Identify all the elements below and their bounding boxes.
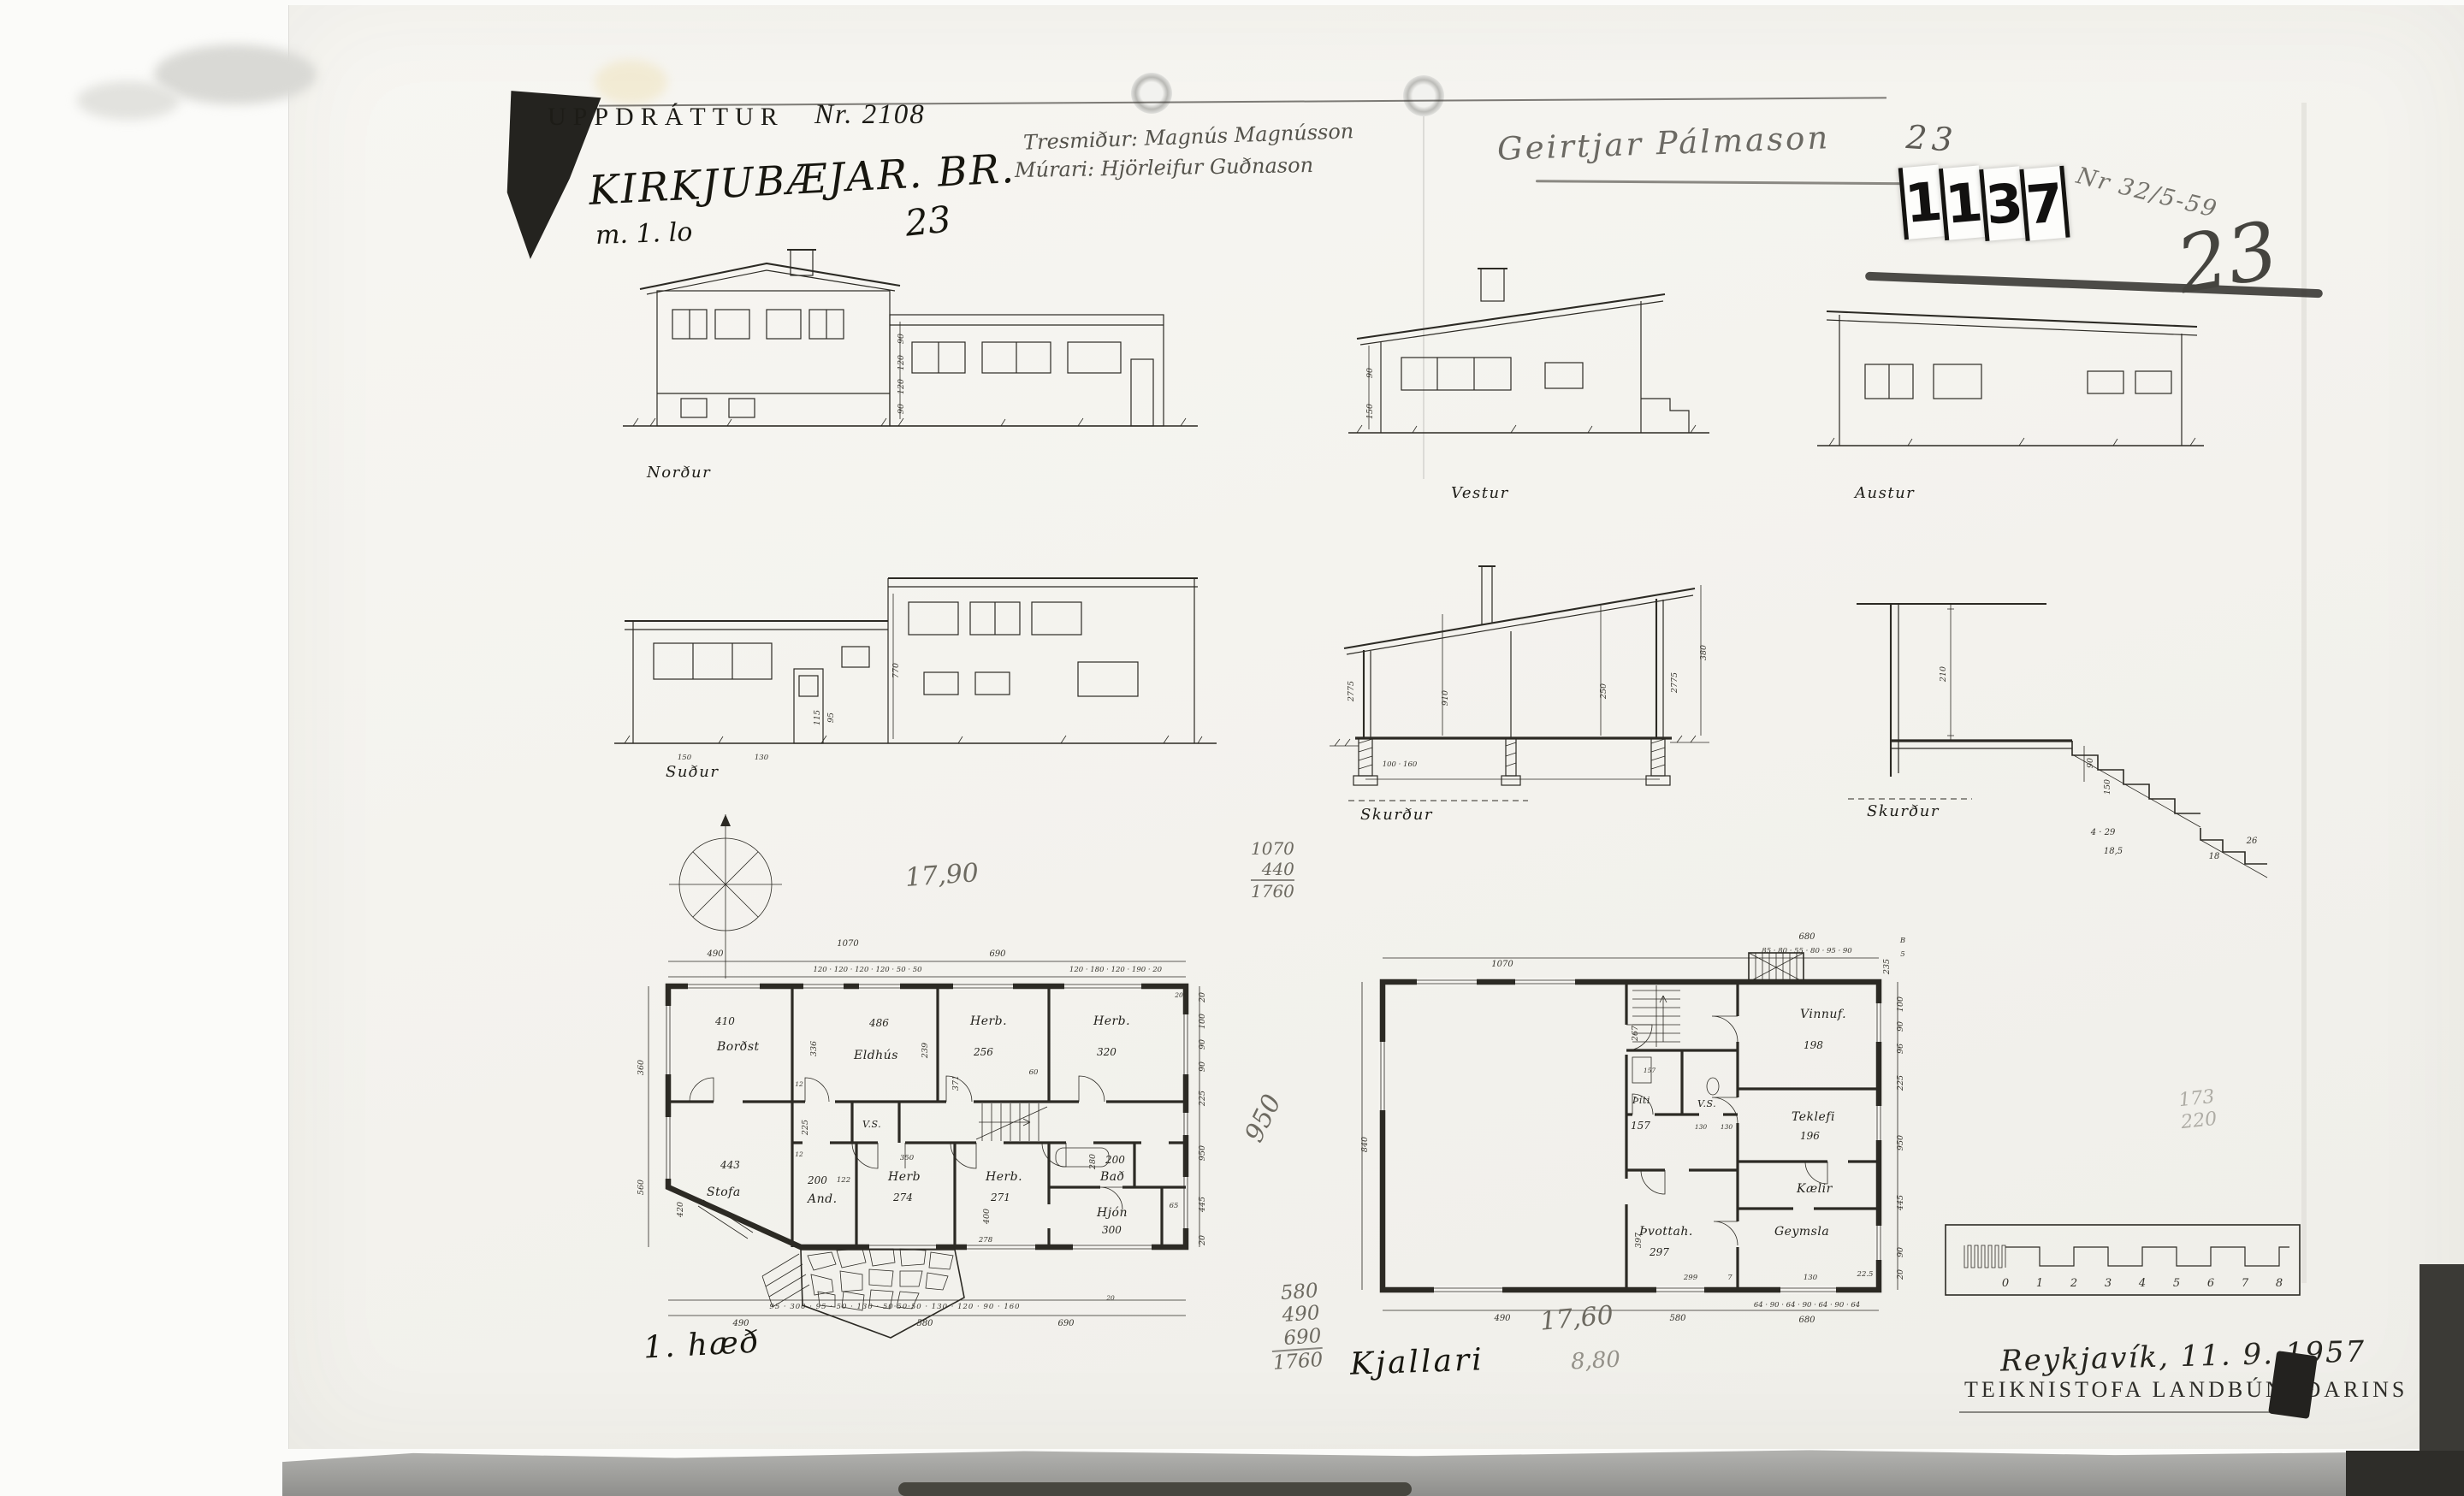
scale-tick: 2 <box>2070 1277 2077 1290</box>
dim-label: 20 <box>1174 991 1183 999</box>
scale-tick: 0 <box>2002 1277 2009 1290</box>
dim-label: 210 <box>1939 666 1948 683</box>
pencil-sum-line: 1760 <box>1272 1349 1324 1375</box>
pencil-faint-notes: 173 220 <box>2177 1086 2218 1135</box>
room-area: 443 <box>720 1159 740 1171</box>
section-a: 2775 910 250 2775 380 100 · 160 Skurður <box>1314 554 1733 828</box>
stamp-digit: 1 <box>1898 164 1945 239</box>
dim-label: 336 <box>809 1041 819 1056</box>
dim-label: 22.5 <box>1857 1270 1874 1279</box>
room-name: Hjón <box>1096 1206 1128 1220</box>
stamp-digit: 1 <box>1939 165 1985 240</box>
scale-tick: 1 <box>2036 1277 2043 1290</box>
dim-label: 1070 <box>837 939 859 949</box>
dim-label: 120 <box>897 355 906 370</box>
section-mark: B <box>1899 937 1905 945</box>
dim-label: 90 <box>1896 1021 1905 1032</box>
dim-label: 20 <box>1198 1235 1207 1246</box>
dim-label: 7 <box>1727 1274 1732 1282</box>
dim-label: 490 <box>706 949 724 959</box>
dim-label: 115 <box>813 710 822 725</box>
dim-label: 225 <box>801 1120 810 1136</box>
pencil-faint-line: 220 <box>2180 1109 2218 1135</box>
dim-label: 690 <box>989 949 1006 959</box>
room-name: V.S. <box>862 1119 881 1130</box>
section-label-a: Skurður <box>1360 806 1433 824</box>
drawing-number: Nr. 2108 <box>814 99 926 131</box>
room-area: 157 <box>1631 1120 1650 1132</box>
dim-label: 400 <box>982 1209 992 1225</box>
dim-label: 445 <box>1198 1197 1207 1213</box>
dim-label: 150 <box>2103 779 2112 795</box>
pencil-stack-line: 1760 <box>1251 881 1294 902</box>
dim-label: 90 <box>897 404 906 414</box>
dim-chain: 120 · 120 · 120 · 120 · 50 · 50 <box>813 966 922 974</box>
pencil-total-basement: 17,60 <box>1539 1300 1615 1336</box>
room-name: Þiti <box>1632 1095 1650 1106</box>
dim-label: 130 <box>1721 1123 1733 1131</box>
paper-stain <box>595 60 667 104</box>
elevation-label-north: Norður <box>646 464 711 482</box>
dim-label: 950 <box>1198 1145 1207 1161</box>
dim-label: 12 <box>795 1150 803 1158</box>
dim-label: 2775 <box>1347 681 1356 702</box>
dim-label: 157 <box>1644 1067 1656 1074</box>
scan-streak <box>2301 103 2307 1283</box>
pencil-total2-basement: 8,80 <box>1570 1347 1620 1375</box>
filing-stamp-1137: 1 1 3 7 <box>1898 154 2070 240</box>
dim-label: 360 <box>637 1060 646 1075</box>
room-area: 196 <box>1800 1130 1820 1142</box>
elevation-label-west: Vestur <box>1451 484 1509 502</box>
dim-label: 130 <box>1804 1274 1818 1282</box>
dim-label: 680 <box>1798 1316 1815 1325</box>
scale-tick: 7 <box>2242 1277 2249 1290</box>
dim-label: 150 <box>678 754 692 762</box>
room-area: 200 <box>1105 1154 1125 1166</box>
dim-label: 580 <box>916 1319 933 1328</box>
scale-bar: 0 1 2 3 4 5 6 7 8 <box>1939 1215 2307 1309</box>
dim-label: 90 <box>2086 758 2095 768</box>
dim-label: 225 <box>1198 1091 1207 1107</box>
drawing-title: UPPDRÁTTUR <box>548 103 785 132</box>
dim-label: 90 <box>1198 1039 1207 1050</box>
room-name: Herb <box>887 1170 921 1184</box>
dim-label: 225 <box>1896 1075 1905 1091</box>
dim-label: 95 <box>826 713 836 723</box>
dim-label: 397 <box>1634 1232 1644 1248</box>
scale-tick: 8 <box>2276 1277 2283 1290</box>
dim-label: 840 <box>1360 1137 1370 1152</box>
section-b: 210 90 150 4 · 29 18,5 18 26 Skurður <box>1831 578 2284 912</box>
dim-label: 90 <box>1198 1061 1207 1072</box>
room-name: Þvottah. <box>1638 1225 1693 1239</box>
ink-blot <box>2268 1351 2318 1419</box>
dim-label: 130 <box>1695 1123 1708 1131</box>
floor1-stairs <box>976 1103 1047 1141</box>
west-linework <box>1348 269 1709 433</box>
elevation-north: 90 120 120 90 Norður <box>599 229 1223 486</box>
scanned-drawing-sheet: UPPDRÁTTUR Nr. 2108 KIRKJUBÆJAR. BR. m. … <box>0 0 2464 1496</box>
dim-label: 26 <box>2246 837 2258 846</box>
scan-corner-dark <box>2420 1264 2464 1463</box>
room-name: Stofa <box>707 1186 741 1199</box>
dim-label: 12 <box>795 1080 803 1088</box>
room-area: 486 <box>868 1017 889 1029</box>
section-label-b: Skurður <box>1867 802 1940 820</box>
dim-label: 20 <box>1198 992 1207 1003</box>
dim-label: 690 <box>1057 1319 1075 1328</box>
pencil-stack-line: 1070 <box>1251 838 1294 859</box>
room-name: Bað <box>1099 1170 1125 1184</box>
dim-label: 250 <box>1599 683 1608 700</box>
stamp-digit: 3 <box>1979 166 2025 241</box>
dim-label: 60 <box>1029 1068 1039 1077</box>
elevation-east: Austur <box>1805 262 2224 510</box>
room-name: Eldhús <box>853 1049 898 1062</box>
dim-label: 420 <box>676 1202 685 1218</box>
room-area: 271 <box>990 1191 1010 1203</box>
room-name: Vinnuf. <box>1800 1008 1846 1021</box>
pencil-stack-line: 440 <box>1251 859 1294 881</box>
dim-label: 910 <box>1441 690 1450 706</box>
dim-label: 680 <box>1798 932 1815 942</box>
pencil-sum-line: 580 <box>1267 1280 1318 1305</box>
room-name: Teklefi <box>1792 1110 1835 1124</box>
pencil-number-small: 23 <box>1905 118 1959 159</box>
room-name: Herb. <box>1093 1014 1130 1028</box>
room-area: 410 <box>714 1015 735 1027</box>
dim-label: 90 <box>1365 368 1375 378</box>
dim-label: 130 <box>755 754 769 762</box>
dim-chain: 95 · 300 · 95 · 50 · 130 · 50·50·50 · 13… <box>769 1303 1020 1311</box>
scan-smudge <box>154 44 317 104</box>
east-linework <box>1817 311 2204 446</box>
dim-label: 18,5 <box>2104 847 2123 856</box>
scale-tick: 6 <box>2207 1277 2214 1290</box>
dim-chain: 85 · 80 · 55 · 80 · 95 · 90 <box>1762 947 1852 955</box>
room-area: 300 <box>1102 1224 1122 1236</box>
basement-partitions <box>1626 982 1879 1290</box>
floor-plan-first-floor: Borðst 410 Eldhús 486 Herb. 256 Herb. 32… <box>587 905 1280 1358</box>
pencil-sum-line: 690 <box>1270 1325 1322 1352</box>
room-area: 297 <box>1649 1246 1669 1258</box>
room-area: 320 <box>1097 1046 1116 1058</box>
scale-tick: 3 <box>2105 1277 2112 1290</box>
dim-label: 20 <box>1896 1269 1905 1280</box>
dim-label: 267 <box>1631 1025 1640 1042</box>
dim-label: 490 <box>1493 1314 1511 1323</box>
dim-label: 120 <box>897 379 906 394</box>
dim-label: 371 <box>951 1075 961 1091</box>
dim-label: 2775 <box>1670 672 1679 694</box>
stamp-digit: 7 <box>2019 166 2070 241</box>
dim-label: 20 <box>1105 1294 1115 1302</box>
punch-hole <box>1131 73 1172 114</box>
floor-plan-basement: Vinnuf. 198 V.S. Þiti 157 Teklefi 196 Kæ… <box>1331 914 1973 1367</box>
dim-label: 122 <box>837 1176 850 1185</box>
dim-label: 65 <box>1170 1202 1179 1210</box>
dim-label: 445 <box>1896 1195 1905 1211</box>
dim-label: 90 <box>897 334 906 344</box>
north-linework <box>623 250 1198 426</box>
dim-label: 950 <box>1896 1135 1905 1150</box>
room-name: Kælir <box>1796 1182 1833 1196</box>
pencil-stack-floor1: 1070 440 1760 <box>1251 838 1294 902</box>
dim-chain: 120 · 180 · 120 · 190 · 20 <box>1069 966 1163 974</box>
dim-label: 770 <box>891 663 901 678</box>
dim-label: 278 <box>978 1236 993 1245</box>
section-mark: 5 <box>1900 950 1904 959</box>
dim-label: 239 <box>921 1043 930 1059</box>
scale-tick: 4 <box>2138 1277 2146 1290</box>
floor1-terrace <box>762 1249 964 1338</box>
room-name: Herb. <box>985 1170 1022 1184</box>
room-name: V.S. <box>1697 1098 1716 1109</box>
plan-label-first-floor: 1. hæð <box>643 1324 761 1365</box>
scan-edge-smear <box>898 1482 1412 1496</box>
basement-entry-stair <box>1749 953 1804 982</box>
room-name: Borðst <box>716 1040 760 1054</box>
south-linework <box>614 578 1217 743</box>
scan-smudge <box>77 81 180 120</box>
dim-label: 100 · 160 <box>1383 760 1418 769</box>
dim-chain: 64 · 90 · 64 · 90 · 64 · 90 · 64 <box>1754 1301 1860 1310</box>
dim-label: 1070 <box>1491 960 1513 969</box>
scale-tick: 5 <box>2173 1277 2180 1290</box>
elevation-west: 90 150 Vestur <box>1331 253 1733 510</box>
dim-label: 96 <box>1896 1044 1905 1054</box>
room-area: 256 <box>973 1046 993 1058</box>
dim-label: 100 <box>1198 1014 1207 1029</box>
punch-hole <box>1403 75 1444 116</box>
dim-label: 100 <box>1896 996 1905 1012</box>
pencil-sum-basement: 580 490 690 1760 <box>1267 1280 1324 1375</box>
dim-label: 235 <box>1882 959 1892 975</box>
room-area: 198 <box>1804 1039 1823 1051</box>
dim-label: 350 <box>900 1154 915 1162</box>
plan-label-basement: Kjallari <box>1349 1342 1484 1381</box>
elevation-label-east: Austur <box>1853 484 1915 502</box>
room-name: Herb. <box>969 1014 1007 1028</box>
elevation-south: 770 115 95 150 130 Suður <box>599 542 1232 799</box>
scan-corner-dark-2 <box>2346 1451 2464 1496</box>
dim-label: 380 <box>1699 645 1709 660</box>
dim-label: 4 · 29 <box>2090 828 2116 837</box>
elevation-label-south: Suður <box>666 763 719 781</box>
dim-label: 280 <box>1088 1154 1098 1170</box>
dim-label: 560 <box>637 1180 646 1195</box>
pencil-sum-line: 490 <box>1269 1302 1320 1327</box>
section-b-linework <box>1848 604 2267 878</box>
dim-label: 90 <box>1896 1247 1905 1257</box>
footer-underline <box>1959 1411 2277 1413</box>
room-name: And. <box>806 1192 838 1206</box>
room-area: 200 <box>807 1174 827 1186</box>
dim-label: 299 <box>1683 1274 1698 1282</box>
dim-label: 150 <box>1365 404 1375 419</box>
pencil-total-floor1: 17,90 <box>904 858 980 893</box>
room-name: Geymsla <box>1774 1225 1829 1239</box>
room-area: 274 <box>892 1191 913 1203</box>
footer-office: TEIKNISTOFA LANDBÚNAÐARINS <box>1964 1377 2408 1403</box>
dim-label: 18 <box>2209 852 2220 861</box>
dim-label: 580 <box>1669 1314 1686 1323</box>
